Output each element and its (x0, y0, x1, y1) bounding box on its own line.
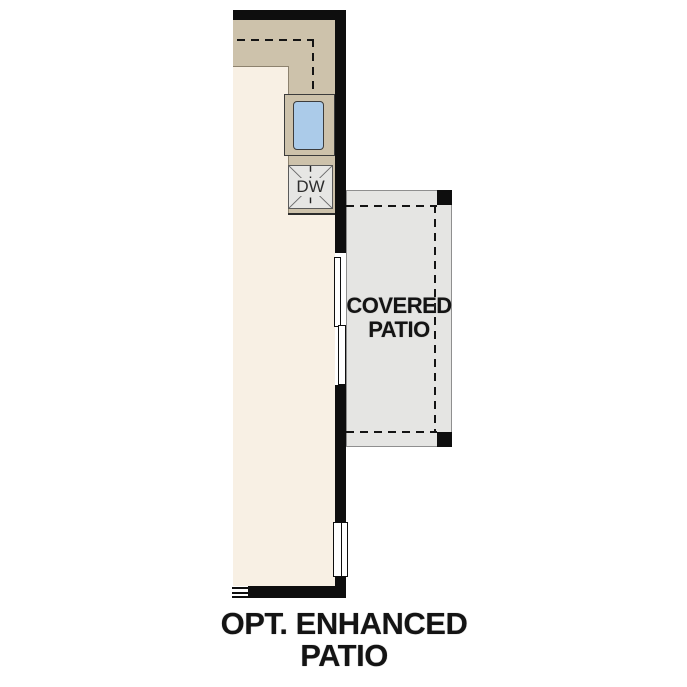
roofline-dash-bottom (346, 431, 437, 433)
wall-bottom (248, 586, 346, 598)
counter-dash-vertical (312, 39, 314, 94)
plan-caption-line2: PATIO (179, 640, 509, 672)
counter-edge-line (288, 213, 335, 215)
covered-patio-label: COVERED PATIO (344, 294, 454, 342)
counter-dash-horizontal (237, 39, 313, 41)
window-mullion (341, 523, 343, 576)
dishwasher-icon: DW (288, 165, 333, 209)
patio-post-top-right (437, 190, 452, 205)
covered-patio-label-line1: COVERED (344, 294, 454, 318)
break-line (232, 596, 248, 598)
kitchen-counter-top (233, 20, 335, 67)
wall-right-upper (335, 10, 346, 253)
sink-icon (293, 101, 324, 150)
covered-patio-label-line2: PATIO (344, 318, 454, 342)
plan-caption: OPT. ENHANCED PATIO (179, 608, 509, 672)
sliding-door-panel-inner (334, 257, 341, 327)
window-icon (333, 522, 348, 577)
wall-top (233, 10, 346, 20)
break-line (232, 592, 248, 594)
break-line (232, 587, 248, 589)
floor-plan: DW COVERED PATIO OPT. ENHANCED PATIO (0, 0, 687, 687)
roofline-dash-top (346, 205, 437, 207)
patio-post-bottom-right (437, 432, 452, 447)
plan-caption-line1: OPT. ENHANCED (179, 608, 509, 640)
dishwasher-label: DW (295, 178, 325, 196)
wall-right-middle (335, 385, 346, 522)
